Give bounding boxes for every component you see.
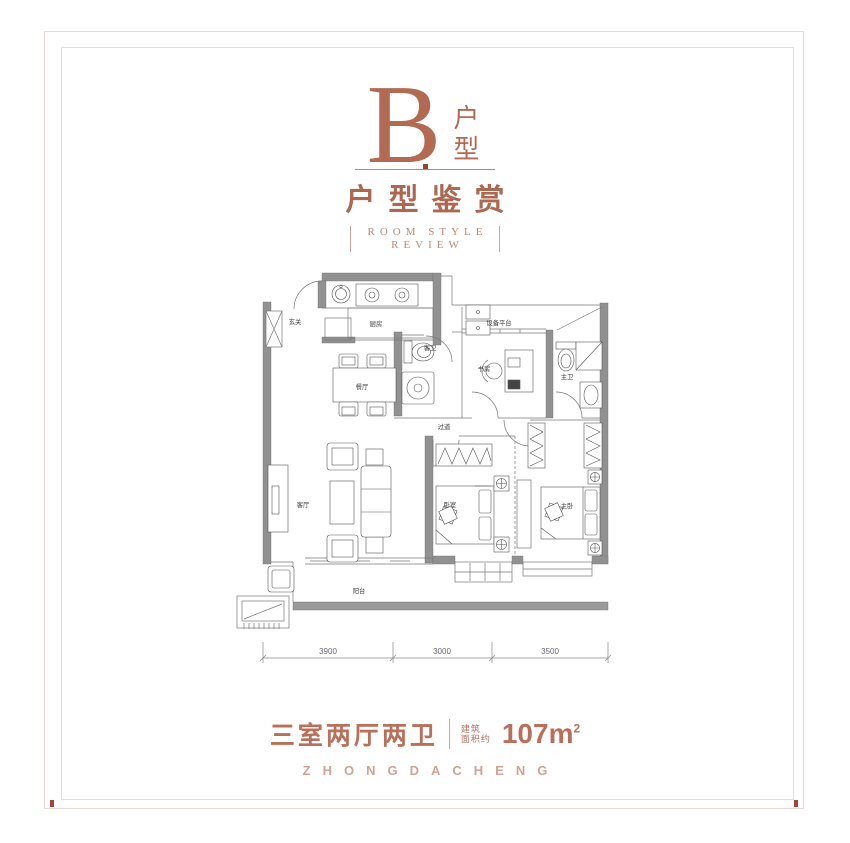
washing-machine bbox=[402, 372, 434, 404]
room-label-bedroom: 卧室 bbox=[444, 500, 457, 509]
dimension-1: 3900 bbox=[319, 647, 337, 656]
room-label-master-bath: 主卫 bbox=[561, 372, 574, 381]
room-label-kitchen: 厨房 bbox=[370, 319, 383, 328]
corner-mark-right bbox=[794, 800, 798, 807]
area-label-bottom: 面积约 bbox=[461, 734, 491, 744]
room-label-study: 书房 bbox=[478, 364, 491, 373]
room-label-guest-bath: 客卫 bbox=[424, 343, 437, 352]
area-label: 建筑 面积约 bbox=[461, 724, 491, 745]
spec-divider bbox=[449, 719, 450, 749]
header-divider bbox=[355, 169, 495, 170]
wardrobe-bedroom bbox=[436, 444, 492, 466]
room-label-living: 客厅 bbox=[297, 500, 310, 509]
dimension-labels: 3900 3000 3500 bbox=[319, 647, 559, 656]
header: B 户型 户型鉴赏 ROOM STYLE REVIEW bbox=[0, 78, 850, 252]
brand-text: ZHONGDACHENG bbox=[291, 763, 560, 778]
wardrobes-master bbox=[528, 423, 602, 468]
subtitle-left-bar bbox=[350, 226, 351, 252]
area-number: 107m bbox=[502, 718, 574, 749]
tv-cabinet bbox=[268, 465, 288, 532]
room-label-equipment-platform: 设备平台 bbox=[486, 318, 511, 327]
dimension-3: 3500 bbox=[541, 647, 559, 656]
room-label-balcony: 阳台 bbox=[353, 586, 366, 595]
subtitle-right-bar bbox=[499, 226, 500, 252]
subtitle-line1: ROOM STYLE bbox=[368, 226, 488, 239]
page-title: 户型鉴赏 bbox=[333, 175, 518, 219]
balcony-washer bbox=[268, 566, 294, 592]
area-exponent: 2 bbox=[573, 722, 580, 736]
walls bbox=[263, 273, 608, 610]
divider-square-ornament bbox=[423, 164, 428, 169]
shaft-pillar bbox=[266, 311, 282, 347]
subtitle-text: ROOM STYLE REVIEW bbox=[363, 226, 488, 251]
spec-row: 三室两厅两卫 建筑 面积约 107m2 bbox=[270, 716, 580, 752]
plan-letter: B bbox=[367, 83, 442, 168]
layout-text: 三室两厅两卫 bbox=[270, 716, 438, 752]
kitchen-sink bbox=[332, 285, 350, 303]
plan-letter-row: B 户型 bbox=[367, 78, 484, 168]
subtitle-line2: REVIEW bbox=[391, 239, 464, 252]
sofa-set bbox=[327, 443, 391, 562]
stove bbox=[356, 284, 418, 306]
room-label-corridor: 过道 bbox=[438, 422, 451, 431]
bed-master bbox=[541, 487, 600, 539]
room-label-entry: 玄关 bbox=[289, 317, 302, 326]
nightstands-bedroom bbox=[494, 476, 509, 552]
area-value: 107m2 bbox=[502, 718, 580, 750]
bed-bedroom bbox=[436, 486, 494, 544]
toilet-master bbox=[556, 342, 576, 371]
footer: 三室两厅两卫 建筑 面积约 107m2 ZHONGDACHENG bbox=[0, 716, 850, 778]
room-label-master-bedroom: 主卧 bbox=[561, 501, 574, 510]
area-label-top: 建筑 bbox=[461, 724, 491, 734]
header-subtitle: ROOM STYLE REVIEW bbox=[350, 226, 501, 252]
shower bbox=[576, 342, 602, 370]
plan-letter-label: 户型 bbox=[453, 103, 483, 166]
room-label-dining: 餐厅 bbox=[356, 382, 369, 391]
dimension-2: 3000 bbox=[433, 647, 451, 656]
corner-mark-left bbox=[50, 800, 54, 807]
floor-plan: 玄关 厨房 餐厅 客厅 客卫 过道 书房 设备平台 主卫 卧室 主卧 阳台 39… bbox=[225, 258, 635, 668]
sink-master bbox=[580, 382, 602, 408]
